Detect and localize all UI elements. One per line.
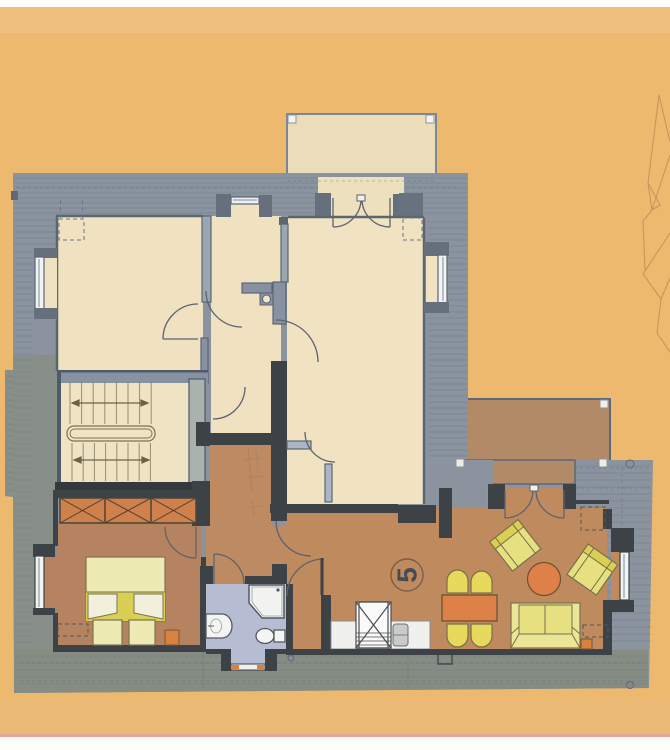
svg-text:5: 5 — [392, 567, 423, 583]
